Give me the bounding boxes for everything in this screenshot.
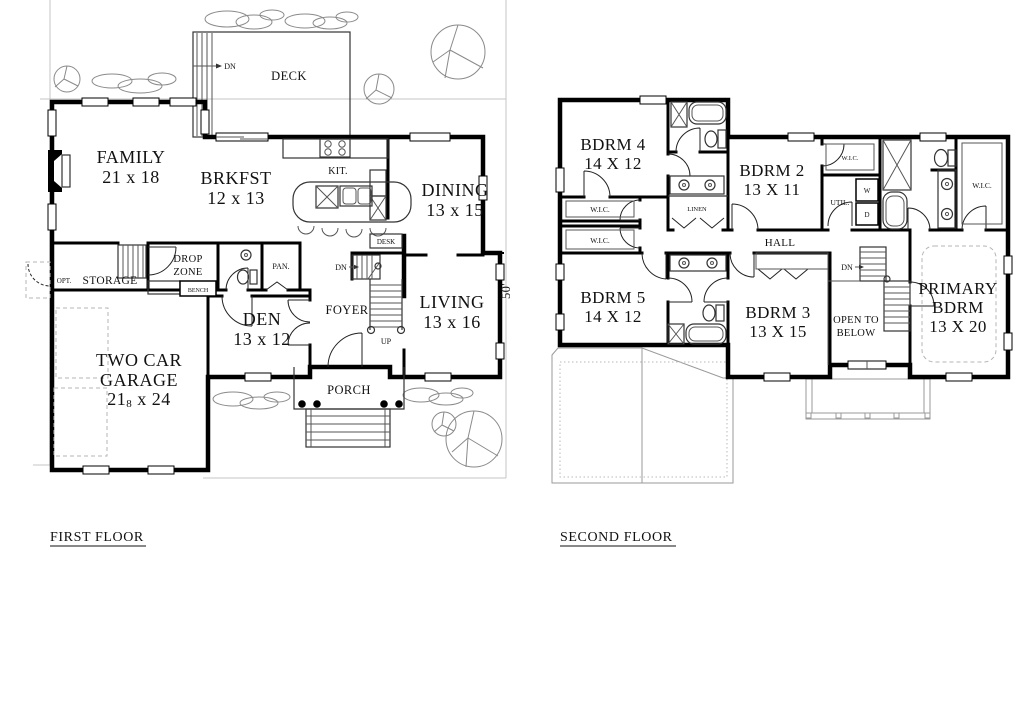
floor-plan-drawing: DN DECK	[0, 0, 1024, 714]
washer-label: W	[864, 187, 871, 195]
bdrm3-dim: 13 X 15	[749, 322, 807, 341]
bdrm3-door	[730, 253, 754, 277]
primary-label-2: BDRM	[932, 298, 984, 317]
fireplace	[48, 150, 70, 192]
brkfst-label: BRKFST	[200, 168, 271, 188]
toilet-bowl	[705, 131, 717, 147]
porch-steps	[306, 409, 390, 447]
bdrm2-dim: 13 X 11	[744, 180, 801, 199]
primary-bath-fixtures	[883, 140, 956, 229]
dryer-label: D	[864, 211, 869, 219]
dining-label: DINING	[422, 180, 489, 200]
opt-storage-door	[28, 264, 50, 286]
toilet-tank	[250, 270, 257, 284]
foyer-label: FOYER	[326, 303, 369, 317]
brkfst-dim: 12 x 13	[207, 188, 265, 208]
util-label: UTIL.	[831, 198, 850, 207]
primary-dim: 13 X 20	[929, 317, 987, 336]
second-floor-plan: BDRM 4 14 X 12 BDRM 2 13 X 11 BDRM 5 14 …	[552, 96, 1012, 546]
bath3-door-from-bdrm5	[668, 278, 692, 302]
garage-label-2: GARAGE	[100, 370, 178, 390]
bdrm3-closet-bifold	[758, 269, 808, 279]
bdrm2-door	[732, 204, 758, 230]
bdrm5-dim: 14 X 12	[584, 307, 642, 326]
open-below-label-2: BELOW	[837, 328, 876, 339]
pantry-label: PAN.	[272, 262, 289, 271]
opt-label: OPT.	[57, 277, 72, 285]
bdrm5-door	[642, 253, 666, 279]
bath3-door-from-bdrm3	[704, 278, 728, 302]
tub	[883, 192, 907, 229]
kitchen-label: KIT.	[328, 166, 348, 177]
powder-door	[226, 268, 248, 290]
powder-room-fixtures	[238, 250, 258, 284]
cubbies	[148, 281, 180, 294]
dimension-50ft-label: 50'	[499, 283, 513, 299]
living-label: LIVING	[420, 292, 485, 312]
wic5-door	[620, 228, 640, 248]
wic-bdrm2-label: W.I.C.	[842, 155, 859, 162]
den-label: DEN	[243, 309, 282, 329]
drop-zone-label-2: ZONE	[173, 267, 202, 278]
toilet-bowl	[935, 150, 948, 167]
hall-bath-door	[668, 154, 690, 176]
garage-dim: 218 x 24	[107, 389, 171, 410]
drop-zone-door	[148, 247, 176, 275]
wic-bdrm4-label: W.I.C.	[590, 205, 610, 214]
ff-labels: FAMILY 21 x 18 BRKFST 12 x 13 KIT. DININ…	[57, 147, 489, 410]
kitchen-fixtures	[283, 139, 411, 237]
bench-label: BENCH	[188, 288, 209, 294]
second-floor-caption: SECOND FLOOR	[560, 530, 676, 546]
vanity	[670, 176, 724, 194]
hall-bath-compartment-door	[676, 128, 700, 152]
balcony	[806, 379, 930, 419]
opt-storage-door-box	[26, 262, 50, 298]
porch-label: PORCH	[327, 383, 371, 397]
desk-label: DESK	[377, 238, 395, 246]
basement-stairs	[118, 245, 146, 278]
deck-dn-label: DN	[224, 62, 236, 71]
deck-label: DECK	[271, 69, 307, 83]
first-floor-caption: FIRST FLOOR	[50, 530, 146, 546]
storage-label: STORAGE	[83, 275, 138, 287]
dining-dim: 13 x 15	[426, 200, 484, 220]
stairs-dn-label: DN	[335, 263, 347, 272]
primary-bath-door	[908, 208, 930, 230]
drop-zone-label-1: DROP	[173, 254, 202, 265]
primary-label-1: PRIMARY	[918, 279, 997, 298]
linen-label: LINEN	[687, 206, 707, 213]
family-label: FAMILY	[97, 147, 166, 167]
powder-sink	[241, 250, 251, 260]
svg-text:SECOND FLOOR: SECOND FLOOR	[560, 530, 673, 545]
hall-label: HALL	[765, 237, 796, 249]
bdrm4-dim: 14 X 12	[584, 154, 642, 173]
den-dim: 13 x 12	[233, 329, 291, 349]
middle-bath-fixtures	[668, 255, 726, 344]
linen-bifold	[672, 218, 724, 228]
island-stools	[298, 226, 386, 237]
toilet-bowl	[238, 270, 249, 284]
primary-wic-door	[962, 206, 986, 230]
family-dim: 21 x 18	[102, 167, 160, 187]
bdrm2-label: BDRM 2	[739, 161, 804, 180]
bdrm5-label: BDRM 5	[580, 288, 645, 307]
range	[320, 139, 350, 157]
sf-labels: BDRM 4 14 X 12 BDRM 2 13 X 11 BDRM 5 14 …	[580, 135, 997, 341]
roof-outline	[552, 348, 733, 483]
ff-doors	[26, 247, 362, 367]
first-floor-plan: DN DECK	[26, 0, 513, 546]
bdrm3-label: BDRM 3	[745, 303, 810, 322]
property-lines	[33, 0, 506, 478]
front-door	[328, 333, 362, 367]
deck-dn-arrow	[216, 64, 222, 69]
wic-bdrm5-label: W.I.C.	[590, 236, 610, 245]
wic-primary-label: W.I.C.	[972, 181, 992, 190]
pantry-bifold	[266, 282, 288, 290]
toilet-tank	[718, 130, 726, 148]
deck: DN DECK	[193, 32, 350, 137]
living-dim: 13 x 16	[423, 312, 481, 332]
garage-label-1: TWO CAR	[96, 350, 182, 370]
sf-dn-label: DN	[841, 263, 853, 272]
open-below-label-1: OPEN TO	[833, 315, 879, 326]
bdrm4-door	[584, 171, 610, 197]
bdrm4-label: BDRM 4	[580, 135, 645, 154]
den-double-doors	[288, 300, 310, 345]
stairs-up-label: UP	[381, 337, 392, 346]
toilet-tank	[716, 305, 724, 321]
floor-plan-page: DN DECK	[0, 0, 1024, 714]
toilet-bowl	[703, 305, 715, 321]
hall-bath-fixtures	[670, 102, 726, 194]
svg-text:FIRST FLOOR: FIRST FLOOR	[50, 530, 144, 545]
